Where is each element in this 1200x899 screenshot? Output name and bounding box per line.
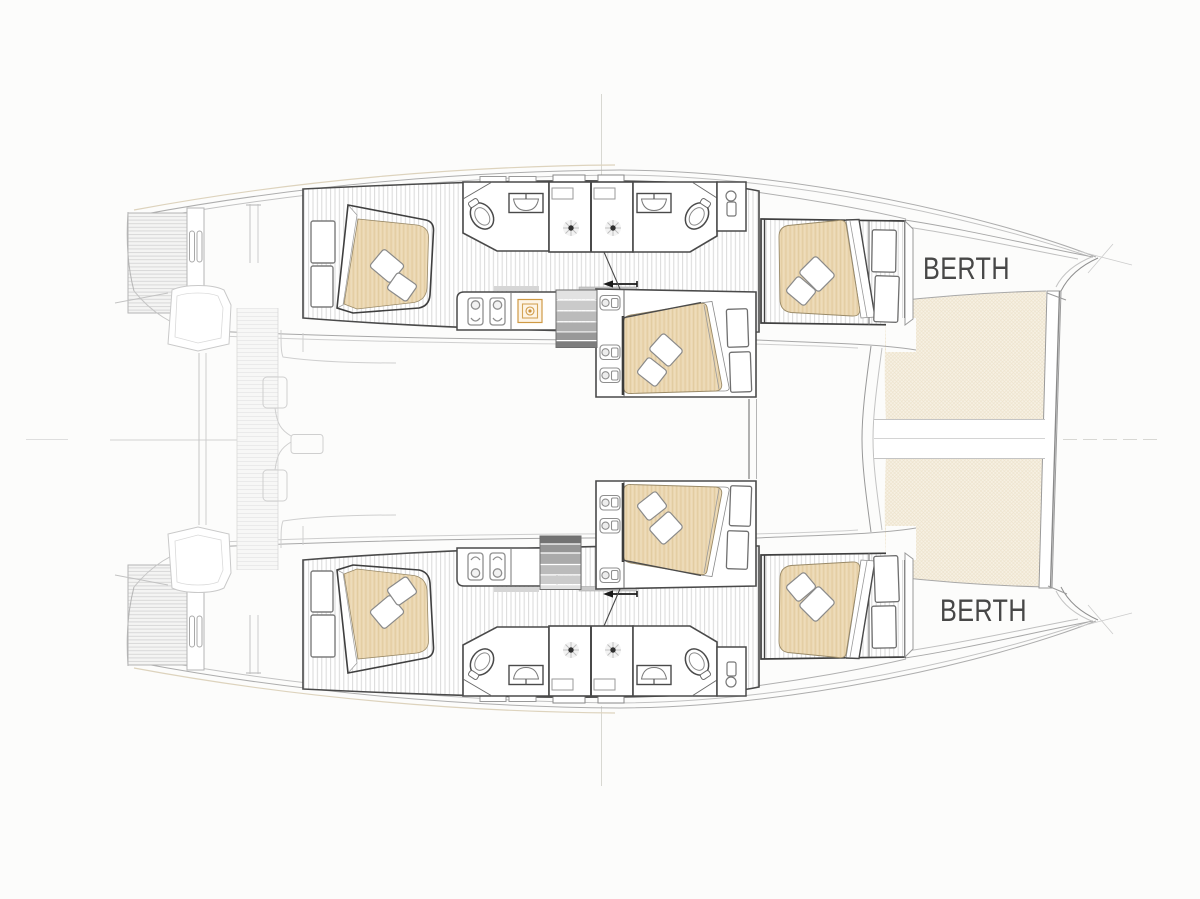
- svg-text:BERTH: BERTH: [923, 251, 1010, 286]
- svg-text:BERTH: BERTH: [940, 593, 1027, 628]
